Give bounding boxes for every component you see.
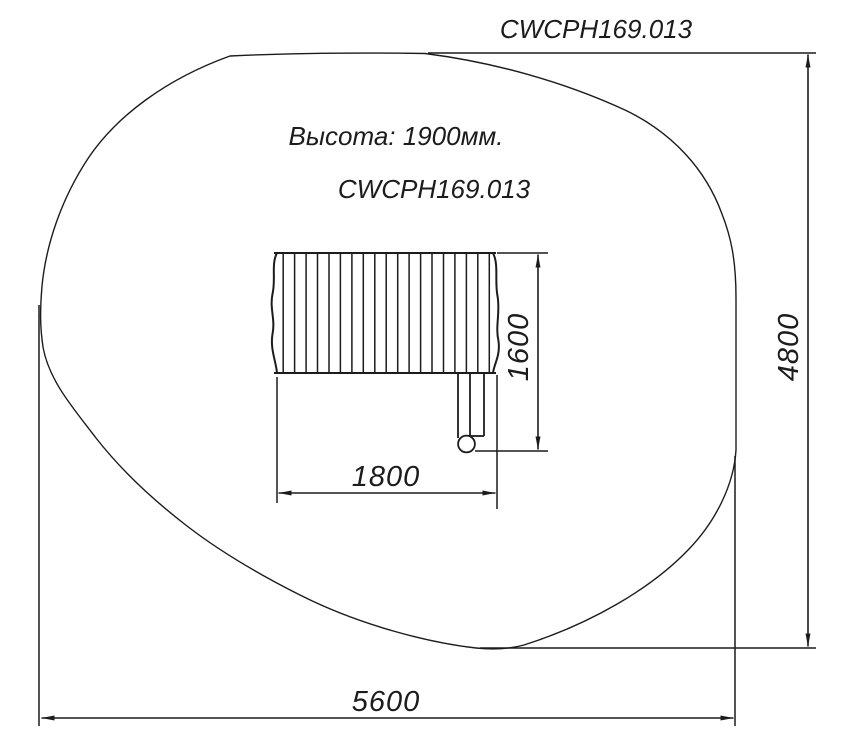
equipment-top-view	[272, 253, 499, 452]
technical-drawing: 1600 1800 4800 5600 CWCPH169.013 Высота:…	[0, 0, 857, 748]
equipment-right-wavy-edge	[493, 253, 499, 373]
model-code-annotation: CWCPH169.013	[338, 174, 531, 204]
dim-label-1600: 1600	[503, 313, 535, 382]
height-annotation: Высота: 1900мм.	[289, 121, 504, 151]
drawing-sheet: 1600 1800 4800 5600 CWCPH169.013 Высота:…	[0, 0, 857, 748]
dim-label-1800: 1800	[352, 461, 421, 493]
equipment-hatch-lines	[283, 254, 489, 372]
dimension-equipment-depth: 1600	[475, 253, 548, 451]
dimension-zone-width: 5600	[39, 305, 735, 726]
drawing-number-title: CWCPH169.013	[500, 14, 693, 44]
dim-label-4800: 4800	[773, 313, 805, 382]
dim-label-5600: 5600	[352, 686, 421, 718]
dimension-equipment-width: 1800	[277, 375, 497, 509]
handle-knob	[458, 436, 475, 453]
equipment-left-wavy-edge	[272, 253, 277, 373]
handle-post	[458, 373, 484, 438]
